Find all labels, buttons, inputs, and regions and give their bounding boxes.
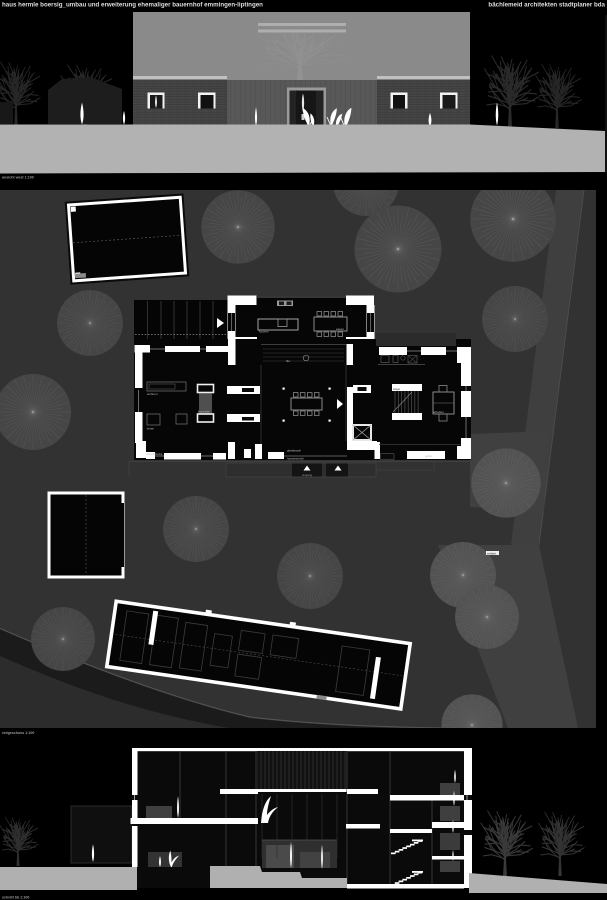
svg-text:flur: flur — [286, 359, 290, 363]
svg-text:erdgeschoss 1:100: erdgeschoss 1:100 — [2, 731, 34, 735]
svg-text:kaminofen: kaminofen — [198, 410, 211, 414]
svg-text:schnitt bb 1:100: schnitt bb 1:100 — [2, 896, 29, 900]
svg-text:hauswirtschaft: hauswirtschaft — [287, 457, 304, 461]
svg-text:kochen: kochen — [259, 330, 269, 334]
svg-text:stiege: stiege — [393, 387, 400, 391]
svg-text:ansicht west 1:100: ansicht west 1:100 — [2, 176, 34, 180]
svg-text:wohnen: wohnen — [147, 392, 158, 396]
svg-text:eingang: eingang — [302, 473, 312, 477]
svg-text:zufahrt: zufahrt — [487, 551, 496, 555]
svg-text:arbeiten: arbeiten — [433, 410, 444, 414]
svg-text:essen: essen — [336, 327, 344, 331]
svg-text:glasfassade: glasfassade — [287, 449, 301, 453]
svg-text:garten: garten — [425, 454, 433, 458]
svg-text:bächlemeid architekten stadtpl: bächlemeid architekten stadtplaner bda — [488, 2, 605, 9]
svg-text:lesen: lesen — [147, 427, 155, 431]
svg-text:sommerkuche: sommerkuche — [146, 452, 163, 456]
svg-text:haus hermle boersig_umbau und: haus hermle boersig_umbau und erweiterun… — [2, 2, 263, 9]
